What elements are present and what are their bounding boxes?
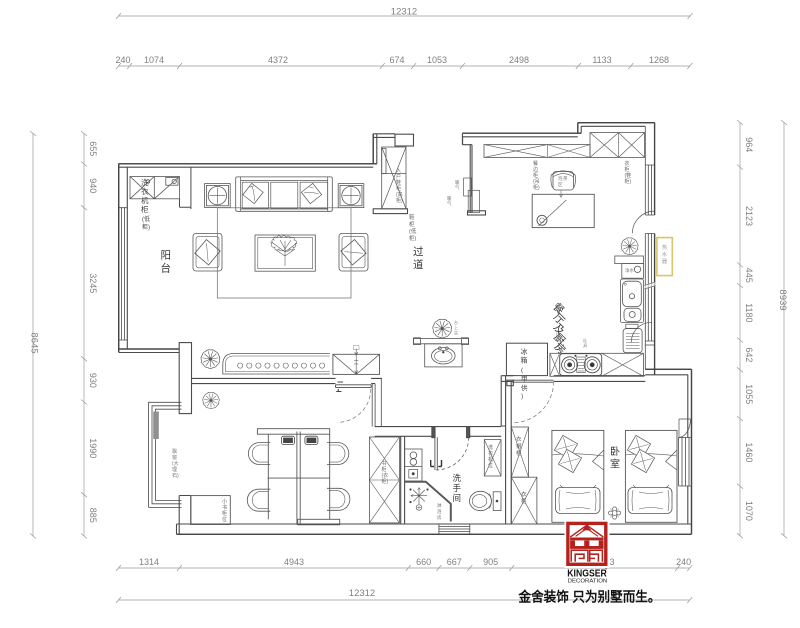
- svg-text:660: 660: [416, 557, 431, 567]
- svg-text:净水: 净水: [625, 267, 634, 274]
- svg-text:台: 台: [161, 262, 172, 275]
- svg-text:667: 667: [447, 557, 462, 567]
- svg-text:器: 器: [662, 259, 667, 265]
- svg-text:帽: 帽: [516, 442, 522, 450]
- svg-text:柜: 柜: [222, 510, 227, 517]
- svg-text:柜: 柜: [396, 185, 401, 192]
- svg-text:淋: 淋: [437, 502, 442, 509]
- svg-text:衣: 衣: [625, 160, 630, 167]
- svg-text:1070: 1070: [744, 501, 754, 521]
- svg-text:衣: 衣: [521, 490, 527, 498]
- svg-text:1053: 1053: [427, 55, 447, 65]
- svg-text:8939: 8939: [777, 289, 788, 310]
- svg-text:机: 机: [141, 195, 149, 205]
- svg-text:箱: 箱: [521, 356, 528, 365]
- svg-text:冰: 冰: [521, 347, 528, 356]
- svg-text:4372: 4372: [268, 55, 288, 65]
- svg-text:1314: 1314: [139, 557, 159, 567]
- svg-text:905: 905: [483, 557, 498, 567]
- svg-text:金舍装饰 只为别墅而生。: 金舍装饰 只为别墅而生。: [518, 589, 661, 605]
- svg-text:柜: 柜: [521, 497, 527, 505]
- svg-text:(衣: (衣: [382, 472, 389, 479]
- svg-text:洗: 洗: [141, 177, 149, 187]
- svg-text:1180: 1180: [744, 303, 754, 322]
- svg-text:DECORATION: DECORATION: [568, 578, 608, 584]
- svg-text:盆: 盆: [454, 329, 458, 335]
- svg-text:浴: 浴: [437, 508, 442, 515]
- svg-text:柜): 柜): [625, 178, 632, 185]
- svg-text:卧: 卧: [610, 445, 620, 458]
- svg-text:(鞋: (鞋: [625, 172, 632, 179]
- svg-text:2123: 2123: [744, 206, 754, 226]
- svg-text:衣: 衣: [488, 450, 493, 457]
- svg-text:柜: 柜: [625, 166, 630, 173]
- svg-text:水: 水: [662, 251, 667, 258]
- svg-text:气: 气: [447, 200, 452, 206]
- svg-text:甲: 甲: [521, 375, 528, 383]
- svg-text:(低: (低: [142, 215, 150, 223]
- svg-text:阳: 阳: [161, 250, 172, 262]
- svg-text:(大: (大: [172, 460, 179, 467]
- svg-text:1055: 1055: [744, 384, 754, 404]
- svg-text:12312: 12312: [391, 7, 417, 18]
- svg-text:885: 885: [88, 508, 98, 523]
- svg-text:930: 930: [88, 373, 98, 388]
- svg-text:柜: 柜: [533, 172, 538, 179]
- svg-text:书: 书: [222, 504, 227, 511]
- svg-text:洗: 洗: [453, 473, 462, 483]
- svg-text:区: 区: [558, 182, 563, 187]
- svg-text:柜: 柜: [382, 466, 387, 473]
- svg-text:衣: 衣: [516, 435, 522, 443]
- svg-text:机: 机: [488, 456, 493, 463]
- svg-text:655: 655: [88, 141, 98, 156]
- svg-text:(: (: [521, 367, 524, 374]
- svg-text:柜): 柜): [142, 223, 150, 231]
- svg-text:2498: 2498: [509, 55, 529, 65]
- svg-text:240: 240: [115, 55, 130, 65]
- svg-text:鞋: 鞋: [409, 213, 415, 221]
- svg-text:室: 室: [610, 458, 620, 471]
- svg-text:间: 间: [453, 493, 462, 503]
- svg-text:642: 642: [744, 347, 754, 362]
- svg-text:674: 674: [389, 55, 404, 65]
- svg-text:3245: 3245: [88, 273, 98, 293]
- svg-text:940: 940: [88, 178, 98, 193]
- svg-text:1990: 1990: [88, 438, 98, 458]
- svg-text:茶: 茶: [563, 175, 568, 181]
- svg-text:鞋: 鞋: [396, 179, 401, 186]
- svg-text:石): 石): [172, 473, 179, 479]
- svg-text:洗: 洗: [488, 444, 493, 451]
- svg-text:气: 气: [455, 184, 460, 190]
- svg-text:热: 热: [662, 244, 667, 251]
- svg-text:小: 小: [222, 498, 227, 505]
- svg-text:(高: (高: [396, 191, 403, 198]
- svg-text:边: 边: [533, 166, 538, 173]
- svg-text:964: 964: [744, 137, 754, 152]
- svg-text:12312: 12312: [349, 588, 375, 599]
- svg-text:手: 手: [453, 483, 462, 493]
- svg-text:道: 道: [413, 258, 424, 271]
- svg-text:柜: 柜: [409, 220, 415, 228]
- svg-text:8645: 8645: [29, 332, 40, 353]
- svg-text:柜): 柜): [409, 234, 417, 242]
- svg-text:过: 过: [413, 245, 424, 258]
- svg-text:户: 户: [396, 173, 401, 180]
- svg-text:位: 位: [222, 516, 227, 523]
- svg-text:柜): 柜): [396, 197, 403, 204]
- svg-text:1074: 1074: [144, 55, 164, 65]
- svg-text:1268: 1268: [649, 55, 669, 65]
- svg-text:衣: 衣: [141, 186, 149, 196]
- svg-text:餐: 餐: [533, 160, 538, 167]
- svg-text:柜: 柜: [141, 204, 149, 214]
- svg-text:窗: 窗: [172, 454, 177, 461]
- svg-text:4943: 4943: [284, 557, 304, 567]
- svg-text:位: 位: [488, 462, 493, 469]
- svg-text:445: 445: [744, 268, 754, 283]
- svg-text:供: 供: [521, 383, 528, 392]
- svg-text:房: 房: [437, 514, 442, 521]
- svg-text:柜): 柜): [533, 184, 540, 191]
- svg-text:柜): 柜): [382, 478, 389, 485]
- svg-text:(低: (低: [409, 227, 417, 235]
- svg-text:柜: 柜: [516, 449, 522, 457]
- svg-text:): ): [521, 393, 523, 400]
- svg-text:具: 具: [583, 343, 588, 349]
- svg-text:书: 书: [382, 460, 387, 467]
- svg-text:240: 240: [676, 557, 691, 567]
- svg-text:’: ’: [605, 568, 607, 575]
- svg-text:1460: 1460: [744, 442, 754, 462]
- svg-text:1133: 1133: [592, 55, 611, 65]
